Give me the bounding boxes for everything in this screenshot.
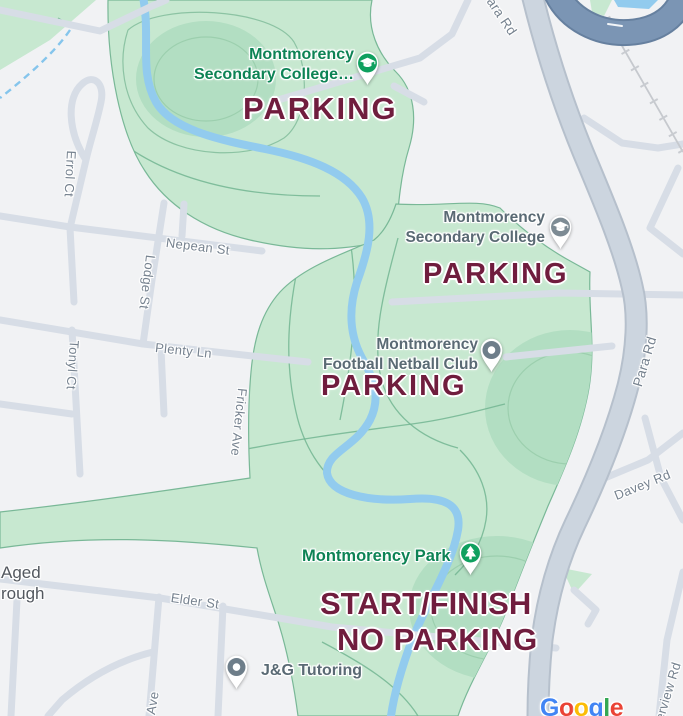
map-canvas[interactable]: Para Rd Para Rd Nepean St Errol Ct Lodge… bbox=[0, 0, 683, 716]
google-logo-letter: G bbox=[540, 694, 559, 716]
annotation-parking-top: PARKING bbox=[243, 93, 398, 124]
google-logo-letter: e bbox=[610, 694, 623, 716]
poi-label-montmorency-secondary-college-north[interactable]: Montmorency Secondary College… bbox=[140, 45, 354, 85]
poi-label-montmorency-football-netball-club[interactable]: Montmorency Football Netball Club bbox=[306, 335, 478, 375]
google-logo-letter: o bbox=[559, 694, 574, 716]
google-logo[interactable]: Google bbox=[540, 694, 623, 716]
annotation-parking-college: PARKING bbox=[423, 260, 569, 289]
street-label-errol-ct: Errol Ct bbox=[62, 150, 79, 197]
poi-line: Montmorency Park bbox=[302, 547, 451, 565]
poi-label-truncated-left-edge: Aged rough bbox=[1, 562, 44, 604]
school-pin-icon[interactable] bbox=[545, 214, 576, 250]
poi-line: J&G Tutoring bbox=[261, 662, 362, 679]
place-dot-pin-icon[interactable] bbox=[476, 337, 507, 373]
poi-line: Montmorency bbox=[443, 209, 545, 226]
poi-line: Secondary College… bbox=[194, 66, 354, 83]
poi-label-montmorency-secondary-college[interactable]: Montmorency Secondary College bbox=[393, 208, 545, 248]
poi-label-jg-tutoring[interactable]: J&G Tutoring bbox=[261, 661, 362, 681]
google-logo-letter: o bbox=[574, 694, 589, 716]
poi-line: Montmorency bbox=[249, 46, 354, 63]
poi-line: Montmorency bbox=[376, 336, 478, 353]
place-dot-pin-icon[interactable] bbox=[221, 654, 252, 690]
school-pin-icon[interactable] bbox=[352, 50, 383, 86]
poi-line: Aged bbox=[1, 563, 41, 582]
annotation-start-finish: START/FINISH bbox=[320, 588, 531, 619]
poi-line: rough bbox=[1, 584, 44, 603]
annotation-no-parking: NO PARKING bbox=[337, 624, 538, 655]
annotation-parking-netball: PARKING bbox=[321, 372, 467, 401]
park-pin-icon[interactable] bbox=[455, 540, 486, 576]
poi-label-montmorency-park[interactable]: Montmorency Park bbox=[302, 546, 451, 566]
poi-line: Secondary College bbox=[405, 229, 545, 246]
google-logo-letter: g bbox=[589, 694, 604, 716]
